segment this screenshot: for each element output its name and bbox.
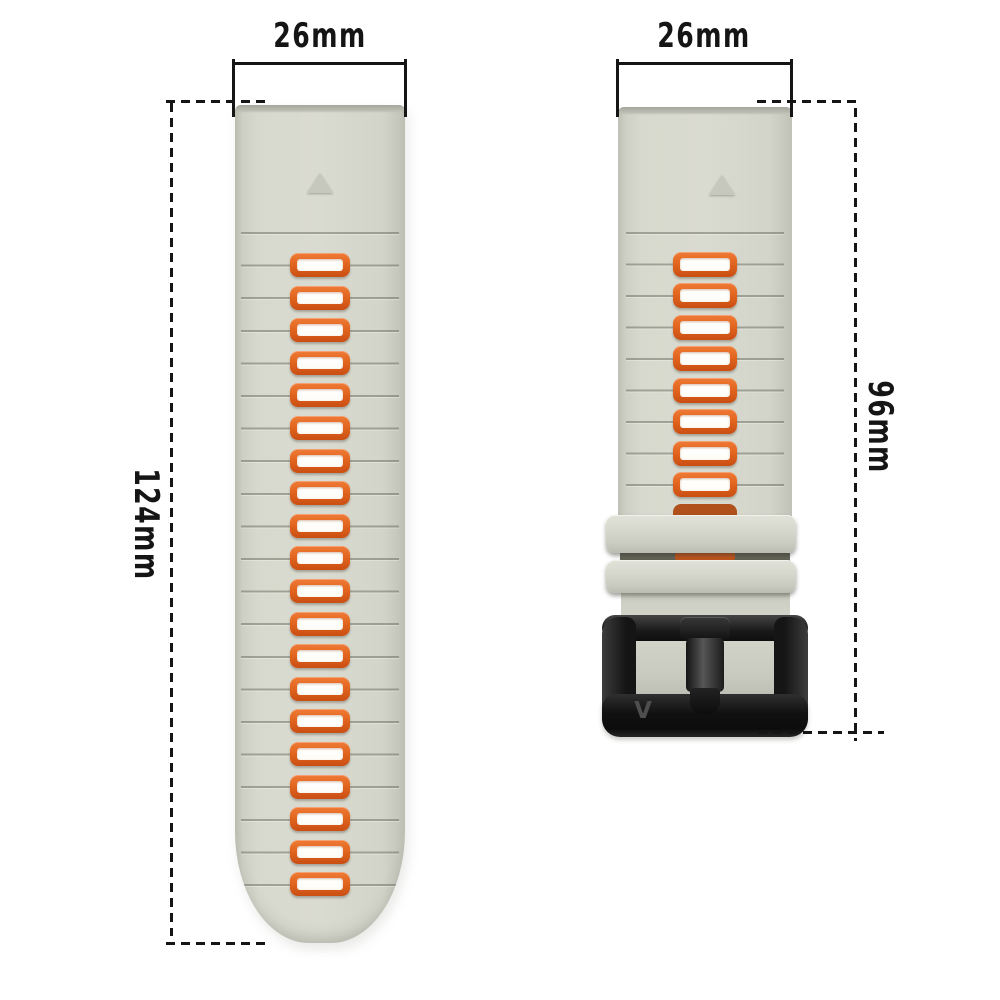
strap-hole-slot <box>673 346 737 371</box>
left-width-tick-right <box>404 59 407 117</box>
strap-holes <box>235 105 405 943</box>
left-length-extension-top <box>166 100 269 103</box>
strap-hole-slot <box>290 709 350 733</box>
left-strap-length-label: 124mm <box>122 468 166 572</box>
strap-hole-slot <box>290 579 350 603</box>
buckle-strap-assembly: V <box>602 107 810 749</box>
buckle-logo: V <box>624 698 662 724</box>
strap-hole-slot <box>290 612 350 636</box>
buckle-prong <box>686 638 724 692</box>
left-strap-width-label: 26mm <box>268 16 372 56</box>
strap-hole-slot <box>290 872 350 896</box>
strap-hole-slot <box>290 318 350 342</box>
strap-hole-slot <box>673 441 737 466</box>
long-strap-band <box>235 105 405 943</box>
strap-hole-slot <box>673 283 737 308</box>
strap-keeper-loop-1 <box>606 515 796 553</box>
strap-hole-slot <box>673 315 737 340</box>
strap-hole-slot <box>673 378 737 403</box>
strap-hole-slot <box>290 840 350 864</box>
strap-keeper-loop-2 <box>606 560 796 593</box>
strap-hole-slot <box>290 546 350 570</box>
strap-hole-slot <box>290 481 350 505</box>
slot-sliver <box>675 553 735 560</box>
right-length-extension-bottom <box>758 731 884 734</box>
strap-hole-slot <box>290 286 350 310</box>
right-strap-length-label: 96mm <box>856 375 900 479</box>
left-width-dimension-line <box>233 62 407 65</box>
right-length-dimension-line <box>854 108 857 741</box>
strap-hole-slot <box>290 514 350 538</box>
strap-hole-slot <box>290 383 350 407</box>
strap-hole-slot <box>673 472 737 497</box>
watch-band-dimension-diagram: V 26mm 26mm 124mm 96mm <box>0 0 1000 1000</box>
strap-hole-slot <box>290 742 350 766</box>
right-width-tick-right <box>790 59 793 117</box>
strap-hole-slot <box>290 775 350 799</box>
strap-hole-slot <box>290 807 350 831</box>
strap-hole-slot <box>290 351 350 375</box>
strap-hole-slot <box>673 409 737 434</box>
strap-hole-slot <box>673 252 737 277</box>
left-width-tick-left <box>232 59 235 117</box>
right-width-tick-left <box>616 59 619 117</box>
buckle-prong-tip <box>690 688 720 714</box>
strap-hole-slot <box>290 416 350 440</box>
strap-hole-slot <box>290 253 350 277</box>
strap-hole-slot <box>290 449 350 473</box>
buckle-strap-band <box>618 107 792 518</box>
right-length-extension-top <box>757 100 858 103</box>
right-width-dimension-line <box>617 62 793 65</box>
left-length-dimension-line <box>170 103 173 936</box>
strap-hole-slot <box>290 644 350 668</box>
right-strap-width-label: 26mm <box>652 16 756 56</box>
strap-hole-slot <box>290 677 350 701</box>
strap-holes <box>618 107 792 518</box>
left-length-extension-bottom <box>166 942 269 945</box>
